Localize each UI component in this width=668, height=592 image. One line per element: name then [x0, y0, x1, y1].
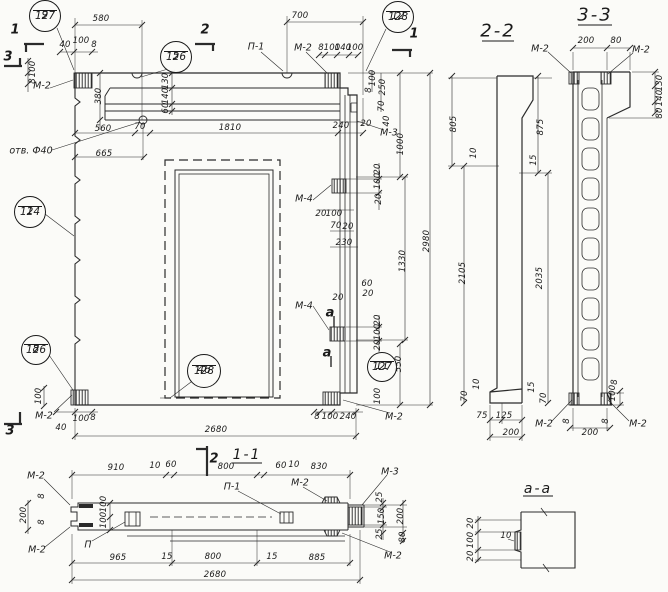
section-3-3-dim-label: 140: [655, 90, 665, 107]
section-3-3-dim-label: 80: [610, 36, 621, 46]
section-3-3-part-label: М-2: [535, 419, 553, 430]
section-2-2-dim-label: 70: [539, 392, 549, 403]
main-elevation-dim-label: 560: [95, 124, 112, 134]
section-2-2-dim-label: 75: [476, 411, 487, 421]
section-1-1-part-label: П: [84, 540, 91, 551]
main-elevation-dim-label: 100: [373, 173, 383, 190]
main-elevation-part-label: М-4: [295, 194, 313, 205]
section-3-3-dim-label: 200: [582, 428, 599, 438]
drawing-sheet: 5807004010088100140100100838013014060560…: [0, 0, 668, 592]
main-elevation-dim-label: 2680: [205, 425, 227, 435]
section-2-2-dim-label: 15: [529, 154, 539, 165]
section-1-1-part-label: М-3: [381, 467, 399, 478]
main-elevation-dim-label: 100: [373, 324, 383, 341]
main-elevation-dim-label: 100: [326, 209, 343, 219]
detail-a-a-dim-label: 20: [466, 517, 476, 528]
section-1-1-dim-label: 8: [37, 493, 47, 499]
main-elevation-dim-label: 240: [340, 412, 357, 422]
main-elevation-dim-label: 100: [28, 61, 38, 78]
main-elevation-dim-label: 580: [93, 14, 110, 24]
section-1-1-dim-label: 100: [99, 512, 109, 529]
callout-sheet-number: 126: [24, 344, 48, 356]
main-elevation-dim-label: 40: [55, 423, 66, 433]
section-2-2-dim-label: 10: [472, 378, 482, 389]
callout-1-124: 1124: [14, 196, 46, 228]
main-elevation-dim-label: 100: [347, 43, 364, 53]
callout-sheet-number: 127: [33, 10, 57, 22]
section-2-2-dim-label: 2105: [458, 262, 468, 284]
section-3-3-dim-label: 8: [601, 418, 611, 424]
main-elevation-part-label: отв. Ф40: [9, 146, 52, 157]
main-elevation-section-mark: а: [326, 306, 335, 321]
main-elevation-part-label: М-2: [33, 81, 51, 92]
section-3-3-dim-label: 100: [608, 385, 618, 402]
main-elevation-dim-label: 665: [96, 149, 113, 159]
main-elevation-dim-label: 100: [34, 388, 44, 405]
main-elevation-dim-label: 1810: [219, 123, 241, 133]
callout-8-126: 8126: [21, 335, 51, 365]
section-1-1-dim-label: 25: [375, 491, 385, 502]
main-elevation-dim-label: 1330: [398, 250, 408, 272]
main-elevation-dim-label: 40: [59, 40, 70, 50]
section-3-3-part-label: М-2: [629, 419, 647, 430]
section-1-1-part-label: П-1: [224, 482, 241, 493]
detail-a-a-dim-label: 100: [466, 532, 476, 549]
annotation-layer: 5807004010088100140100100838013014060560…: [0, 0, 668, 592]
callout-9-127: 9127: [29, 0, 61, 32]
section-1-1-dim-label: 200: [19, 507, 29, 524]
main-elevation-dim-label: 20: [360, 119, 371, 129]
main-elevation-section-mark: 2: [200, 23, 209, 38]
section-3-3-dim-label: 8: [562, 418, 572, 424]
section-2-2-dim-label: 10: [469, 147, 479, 158]
section-1-1-dim-label: 15: [161, 552, 172, 562]
section-1-1-part-label: М-2: [28, 545, 46, 556]
main-elevation-section-mark: 1: [409, 27, 418, 42]
callout-46-128: 46128: [187, 354, 221, 388]
main-elevation-section-mark: 3: [3, 50, 12, 65]
section-1-1-dim-label: 15: [266, 552, 277, 562]
main-elevation-dim-label: 60: [161, 102, 171, 113]
section-1-1-part-label: М-2: [27, 471, 45, 482]
section-2-2-dim-label: 70: [460, 390, 470, 401]
main-elevation-dim-label: 8: [364, 87, 374, 93]
main-elevation-dim-label: 20: [332, 293, 343, 303]
main-elevation-dim-label: 8: [91, 40, 97, 50]
section-1-1-dim-label: 2680: [204, 570, 226, 580]
main-elevation-dim-label: 8: [90, 413, 96, 423]
section-1-1-dim-label: 965: [110, 553, 127, 563]
section-3-3-dim-label: 80: [655, 107, 665, 118]
section-2-2-dim-label: 15: [527, 381, 537, 392]
main-elevation-part-label: М-2: [385, 412, 403, 423]
main-elevation-section-mark: 1: [10, 23, 19, 38]
callout-sheet-number: 124: [18, 206, 42, 218]
main-elevation-dim-label: 250: [378, 79, 388, 96]
section-1-1-dim-label: 800: [205, 552, 222, 562]
section-1-1-dim-label: 200: [396, 508, 406, 525]
main-elevation-dim-label: 380: [94, 88, 104, 105]
main-elevation-dim-label: 40: [382, 115, 392, 126]
section-1-1-dim-label: 25: [375, 528, 385, 539]
section-1-1-dim-label: 150: [377, 508, 387, 525]
main-elevation-dim-label: 100: [368, 70, 378, 87]
main-elevation-dim-label: 100: [73, 36, 90, 46]
main-elevation-part-label: М-4: [295, 301, 313, 312]
main-elevation-dim-label: 20: [373, 339, 383, 350]
callout-sheet-number: 128: [386, 11, 410, 23]
detail-a-a-title: а-а: [524, 481, 552, 497]
section-1-1-dim-label: 60: [275, 461, 286, 471]
main-elevation-dim-label: 240: [333, 121, 350, 131]
section-2-2-title: 2-2: [480, 21, 515, 42]
main-elevation-section-mark: а: [323, 346, 332, 361]
main-elevation-dim-label: 100: [322, 412, 339, 422]
section-1-1-dim-label: 10: [149, 461, 160, 471]
section-2-2-dim-label: 200: [503, 428, 520, 438]
section-3-3-part-label: М-2: [632, 45, 650, 56]
main-elevation-dim-label: 20: [374, 193, 384, 204]
main-elevation-dim-label: 700: [292, 11, 309, 21]
callout-11-127: 11127: [367, 352, 397, 382]
main-elevation-dim-label: 70: [134, 122, 145, 132]
callout-12-128: 12128: [382, 1, 414, 33]
main-elevation-dim-label: 70: [330, 221, 341, 231]
section-3-3-title: 3-3: [577, 5, 612, 26]
main-elevation-dim-label: 20: [362, 289, 373, 299]
callout-sheet-number: 128: [192, 365, 216, 377]
callout-sheet-number: 126: [164, 51, 188, 63]
section-1-1-dim-label: 800: [218, 462, 235, 472]
section-3-3-dim-label: 200: [578, 36, 595, 46]
main-elevation-dim-label: 8: [314, 412, 320, 422]
main-elevation-dim-label: 2980: [422, 230, 432, 252]
section-1-1-part-label: М-2: [384, 551, 402, 562]
callout-5-126: 5126: [160, 41, 192, 73]
main-elevation-dim-label: 60: [361, 279, 372, 289]
main-elevation-dim-label: 100: [73, 414, 90, 424]
main-elevation-part-label: М-3: [380, 128, 398, 139]
main-elevation-dim-label: 100: [373, 388, 383, 405]
detail-a-a-dim-label: 10: [500, 531, 511, 541]
section-2-2-dim-label: 125: [496, 411, 513, 421]
section-3-3-part-label: М-2: [531, 44, 549, 55]
detail-a-a-dim-label: 20: [466, 550, 476, 561]
section-2-2-dim-label: 875: [536, 119, 546, 136]
section-1-1-dim-label: 885: [309, 553, 326, 563]
section-1-1-dim-label: 830: [311, 462, 328, 472]
main-elevation-dim-label: 20: [342, 222, 353, 232]
section-1-1-dim-label: 10: [288, 460, 299, 470]
main-elevation-part-label: М-2: [35, 411, 53, 422]
main-elevation-dim-label: 70: [377, 100, 387, 111]
section-1-1-dim-label: 80: [398, 531, 408, 542]
main-elevation-part-label: М-2: [294, 43, 312, 54]
callout-sheet-number: 127: [370, 361, 394, 373]
section-1-1-dim-label: 60: [165, 460, 176, 470]
section-1-1-section-mark: 2: [209, 452, 218, 467]
main-elevation-section-mark: 3: [5, 424, 14, 439]
section-1-1-title: 1-1: [233, 447, 262, 463]
main-elevation-part-label: П-1: [248, 42, 265, 53]
section-1-1-dim-label: 8: [37, 519, 47, 525]
section-1-1-dim-label: 910: [108, 463, 125, 473]
main-elevation-dim-label: 230: [336, 238, 353, 248]
section-1-1-part-label: М-2: [291, 478, 309, 489]
section-2-2-dim-label: 805: [449, 116, 459, 133]
section-1-1-dim-label: 100: [99, 496, 109, 513]
section-2-2-dim-label: 2035: [535, 267, 545, 289]
